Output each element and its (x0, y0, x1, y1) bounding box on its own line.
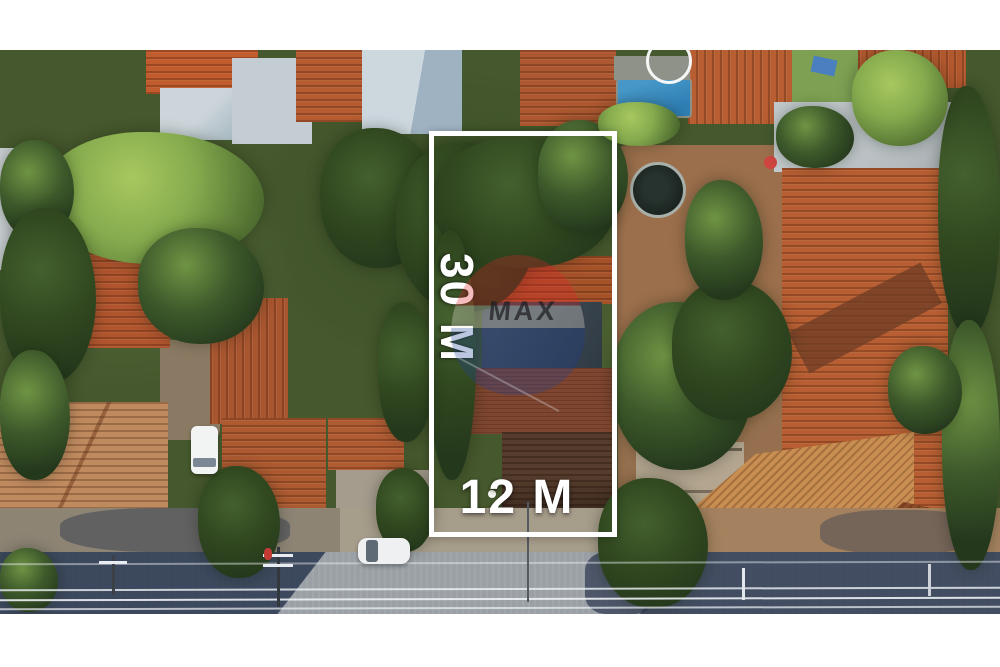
utility-pole (742, 568, 745, 600)
tree-canopy (672, 280, 792, 420)
tree-canopy (888, 346, 962, 434)
letterbox-bottom (0, 614, 1000, 667)
pedestrian (264, 548, 272, 560)
red-umbrella (764, 156, 777, 169)
car-windshield (366, 540, 378, 562)
tree-canopy (0, 548, 58, 612)
tree-canopy (378, 302, 434, 442)
pole-crossarm (99, 561, 127, 564)
letterbox-top (0, 0, 1000, 50)
tree-canopy (0, 350, 70, 480)
van-windshield (193, 458, 216, 467)
pole-crossarm (263, 564, 293, 567)
tree-canopy (138, 228, 264, 344)
utility-pole (928, 564, 931, 596)
tree-canopy (942, 320, 1000, 570)
tree-canopy (198, 466, 280, 578)
round-pool (630, 162, 686, 218)
roof-patch (296, 50, 372, 122)
vine-on-roof (776, 106, 854, 168)
tree-canopy (938, 86, 1000, 336)
letterboxed-photo-frame: 30 M 12 M MAX (0, 0, 1000, 667)
aerial-photo: 30 M 12 M MAX (0, 50, 1000, 614)
roof-patch (362, 50, 462, 134)
watermark-brand-text: MAX (467, 296, 580, 327)
tree-canopy (685, 180, 763, 300)
lot-width-label: 12 M (397, 470, 637, 526)
tree-canopy (852, 50, 948, 146)
